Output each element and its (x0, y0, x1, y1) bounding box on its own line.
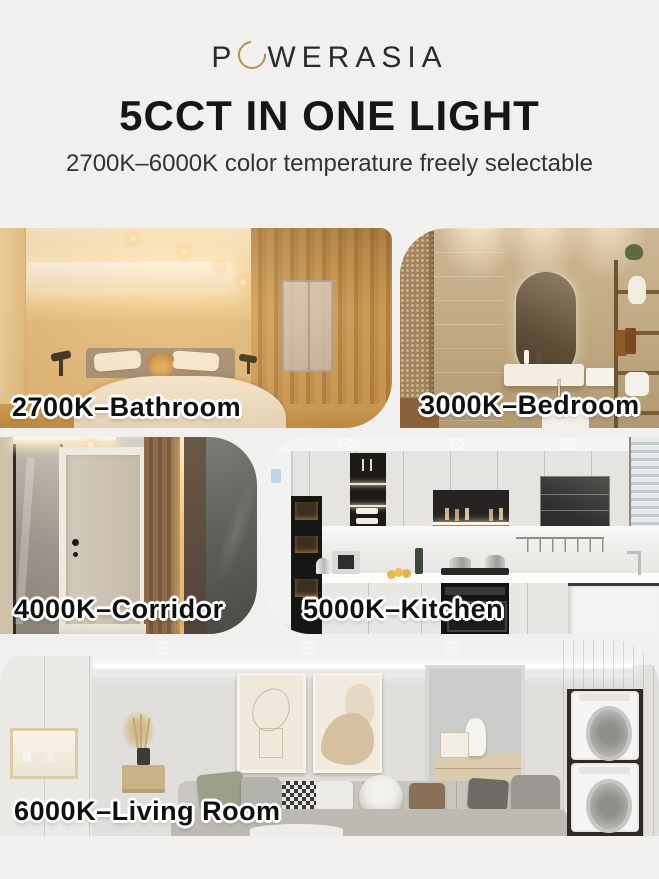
shelf-vase (628, 276, 646, 304)
scene-label-3000k: 3000K–Bedroom (420, 390, 640, 421)
page-title: 5CCT IN ONE LIGHT (0, 92, 659, 140)
photo-4000k: 4000K–Corridor (0, 437, 257, 634)
cove-light (13, 437, 116, 444)
cushion-brown (409, 783, 445, 810)
amber-bottles (625, 328, 635, 354)
washer-control-panel (579, 767, 631, 774)
cabinet-shelf (541, 494, 608, 495)
photo-5000k: 5000K–Kitchen (263, 437, 659, 634)
lit-shelf (350, 505, 386, 507)
cushion-dark (467, 778, 509, 812)
cushion-checked (282, 781, 319, 810)
open-shelf-unit (350, 453, 386, 526)
fridge-energy-label (271, 469, 281, 483)
glass-cabinet (540, 476, 609, 527)
page-subtitle: 2700K–6000K color temperature freely sel… (0, 150, 659, 178)
shelf-plant (625, 244, 643, 260)
logo-text-post: WERASIA (267, 41, 447, 74)
downlight-icon (453, 440, 461, 448)
cabinet-shelf (541, 510, 608, 511)
floor (59, 624, 146, 634)
lit-niche (295, 502, 319, 520)
plant-vase (137, 748, 150, 766)
photo-6000k: 6000K–Living Room (0, 640, 659, 836)
downlight-icon (448, 644, 456, 652)
abstract-art (321, 713, 374, 765)
photo-3000k: 3000K–Bedroom (400, 228, 659, 428)
spice-jars (445, 508, 449, 520)
sink-faucet-spout (627, 551, 641, 554)
scene-label-5000k: 5000K–Kitchen (303, 594, 503, 625)
brand-logo: PWERASIA (0, 40, 659, 75)
line-art (259, 728, 283, 758)
logo-text-pre: P (211, 41, 237, 74)
display-niche (10, 728, 79, 779)
scene-label-2700k: 2700K–Bathroom (12, 392, 241, 423)
gas-cooktop (441, 568, 508, 575)
cooking-pot (485, 555, 505, 569)
side-table (122, 765, 165, 792)
lit-shelf (350, 483, 386, 485)
white-bowls (356, 508, 378, 514)
washer-control-panel (579, 694, 631, 701)
lit-niche (295, 536, 319, 554)
washing-machine-top (571, 691, 639, 760)
artwork-frame-right (313, 673, 382, 773)
coffee-machine-front (338, 555, 354, 569)
product-infographic: PWERASIA 5CCT IN ONE LIGHT 2700K–6000K c… (0, 0, 659, 879)
washer-door (586, 706, 632, 761)
shelf-board (618, 331, 659, 335)
side-wall (0, 437, 13, 634)
niche-decor (23, 752, 31, 762)
floating-sink (504, 364, 584, 386)
under-cabinet-led (433, 522, 508, 525)
artwork-frame-left (237, 673, 306, 773)
photo-2700k: 2700K–Bathroom (0, 228, 392, 428)
island-counter (568, 583, 659, 634)
hanging-utensils (516, 537, 603, 552)
wine-bottle (415, 548, 422, 574)
downlight-icon (564, 440, 572, 448)
cove-led-strip (26, 664, 632, 668)
washing-machine-bottom (571, 763, 639, 832)
washer-door (586, 779, 632, 834)
toiletry-bottle (524, 350, 529, 364)
fruit-bowl (394, 568, 403, 577)
plant-stem (140, 714, 142, 748)
kettle (316, 558, 330, 574)
scene-label-6000k: 6000K–Living Room (14, 796, 281, 827)
cushion-white (316, 781, 352, 810)
sink-faucet (638, 551, 641, 575)
downlight-icon (303, 644, 311, 652)
toiletry-bottle (535, 353, 542, 364)
scene-label-4000k: 4000K–Corridor (14, 594, 224, 625)
small-frame (440, 732, 468, 758)
wine-glasses (362, 459, 364, 471)
